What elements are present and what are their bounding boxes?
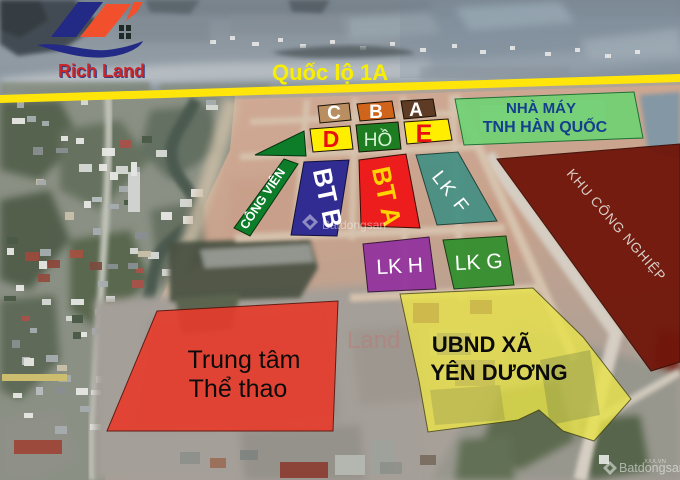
svg-text:D: D — [323, 126, 340, 152]
svg-text:E: E — [416, 120, 433, 148]
svg-text:TNH HÀN QUỐC: TNH HÀN QUỐC — [483, 116, 608, 136]
svg-text:NHÀ MÁY: NHÀ MÁY — [506, 100, 576, 117]
svg-text:Rich Land: Rich Land — [58, 61, 145, 81]
svg-text:YÊN DƯƠNG: YÊN DƯƠNG — [430, 360, 567, 385]
svg-text:Quốc lộ 1A: Quốc lộ 1A — [272, 60, 388, 85]
svg-text:LK H: LK H — [376, 254, 424, 279]
svg-text:Trung tâm: Trung tâm — [187, 346, 300, 374]
svg-text:Thể thao: Thể thao — [189, 375, 288, 403]
svg-text:UBND XÃ: UBND XÃ — [432, 332, 532, 357]
svg-text:Land: Land — [347, 327, 400, 354]
svg-text:Batdongsan: Batdongsan — [619, 461, 680, 475]
svg-text:B: B — [369, 102, 383, 123]
svg-text:C: C — [327, 103, 341, 124]
svg-text:LK G: LK G — [454, 250, 503, 275]
svg-text:A: A — [409, 100, 423, 121]
svg-text:Batdongsan: Batdongsan — [322, 218, 386, 232]
svg-text:HỒ: HỒ — [364, 129, 393, 151]
